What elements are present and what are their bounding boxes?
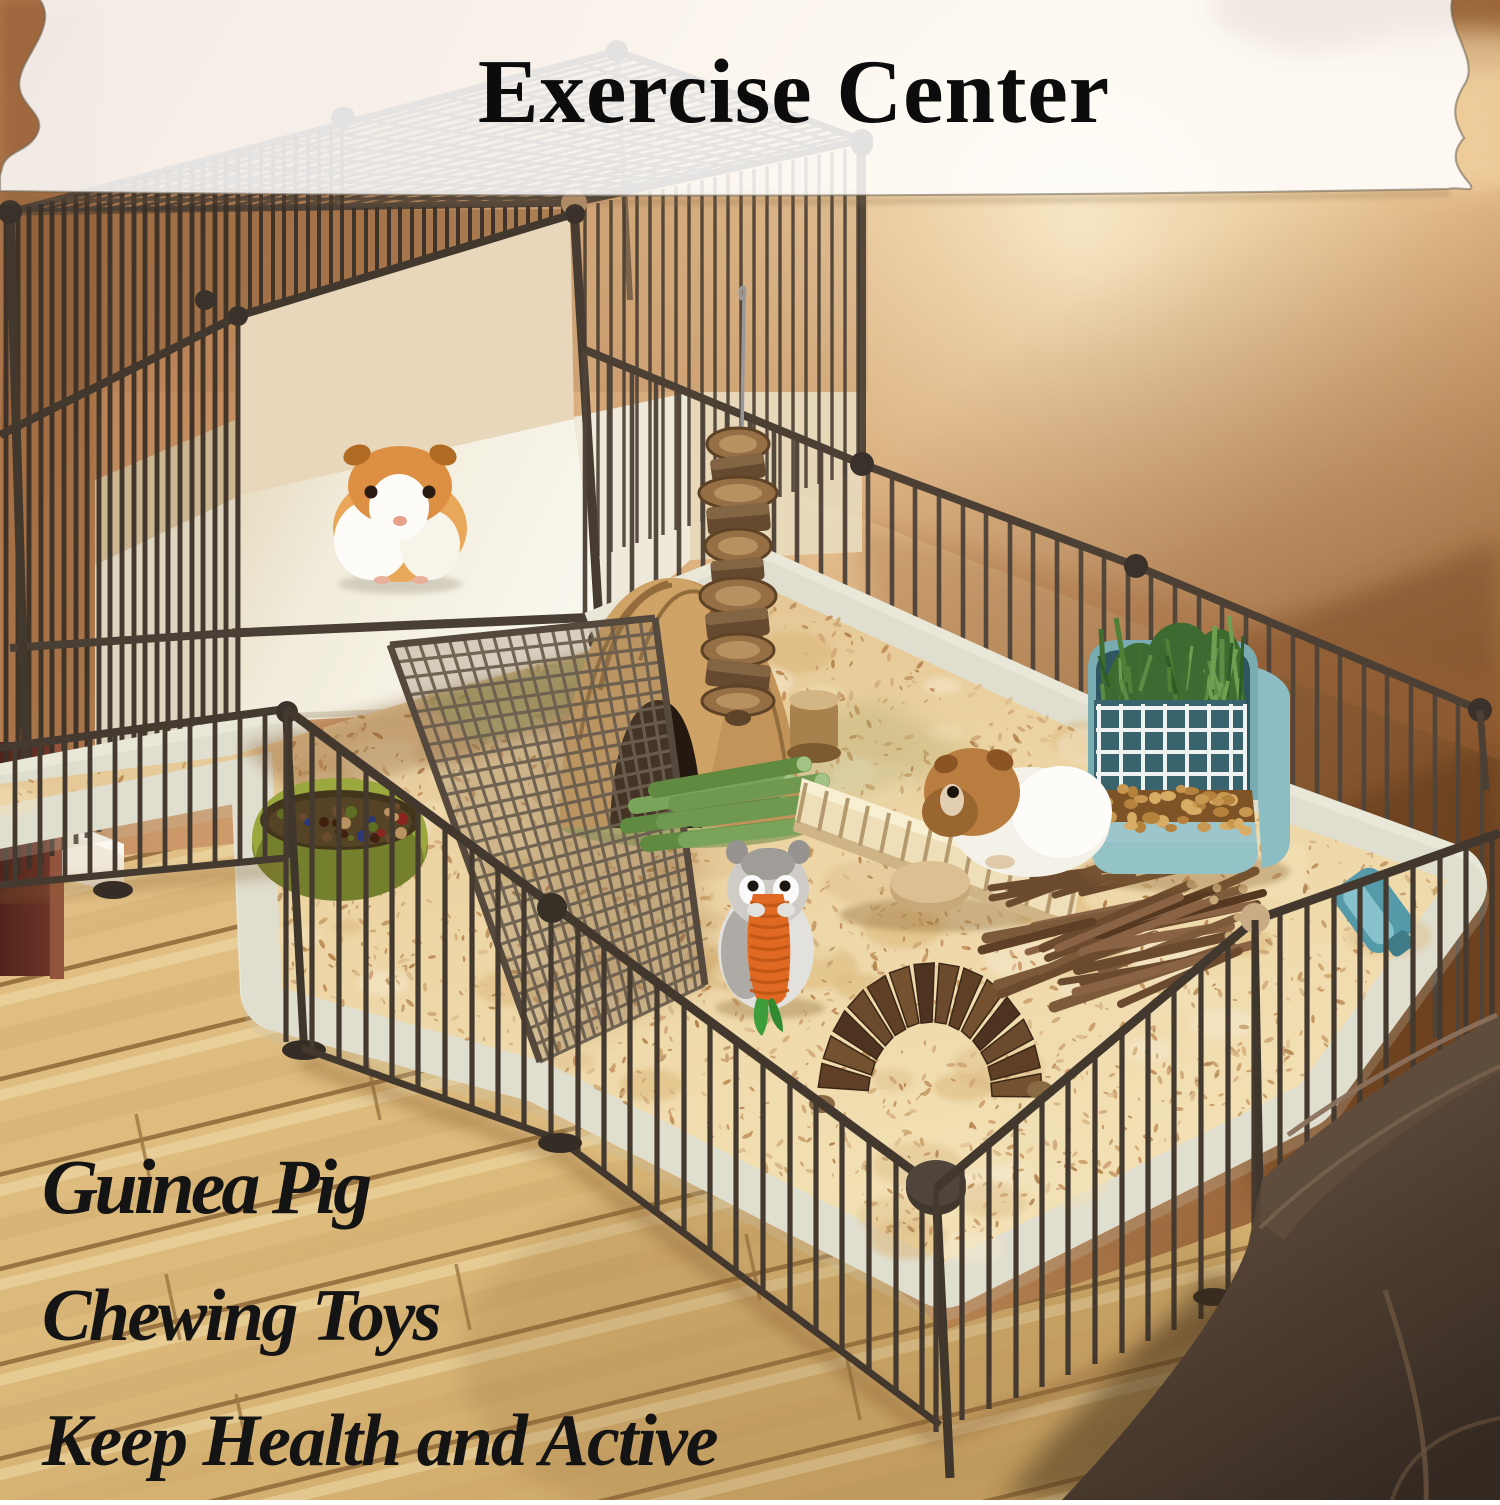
svg-text:Keep Health and Active: Keep Health and Active [41, 1400, 718, 1482]
svg-text:Chewing Toys: Chewing Toys [42, 1275, 440, 1357]
svg-text:Guinea Pig: Guinea Pig [42, 1143, 370, 1230]
svg-text:Exercise Center: Exercise Center [478, 41, 1110, 142]
